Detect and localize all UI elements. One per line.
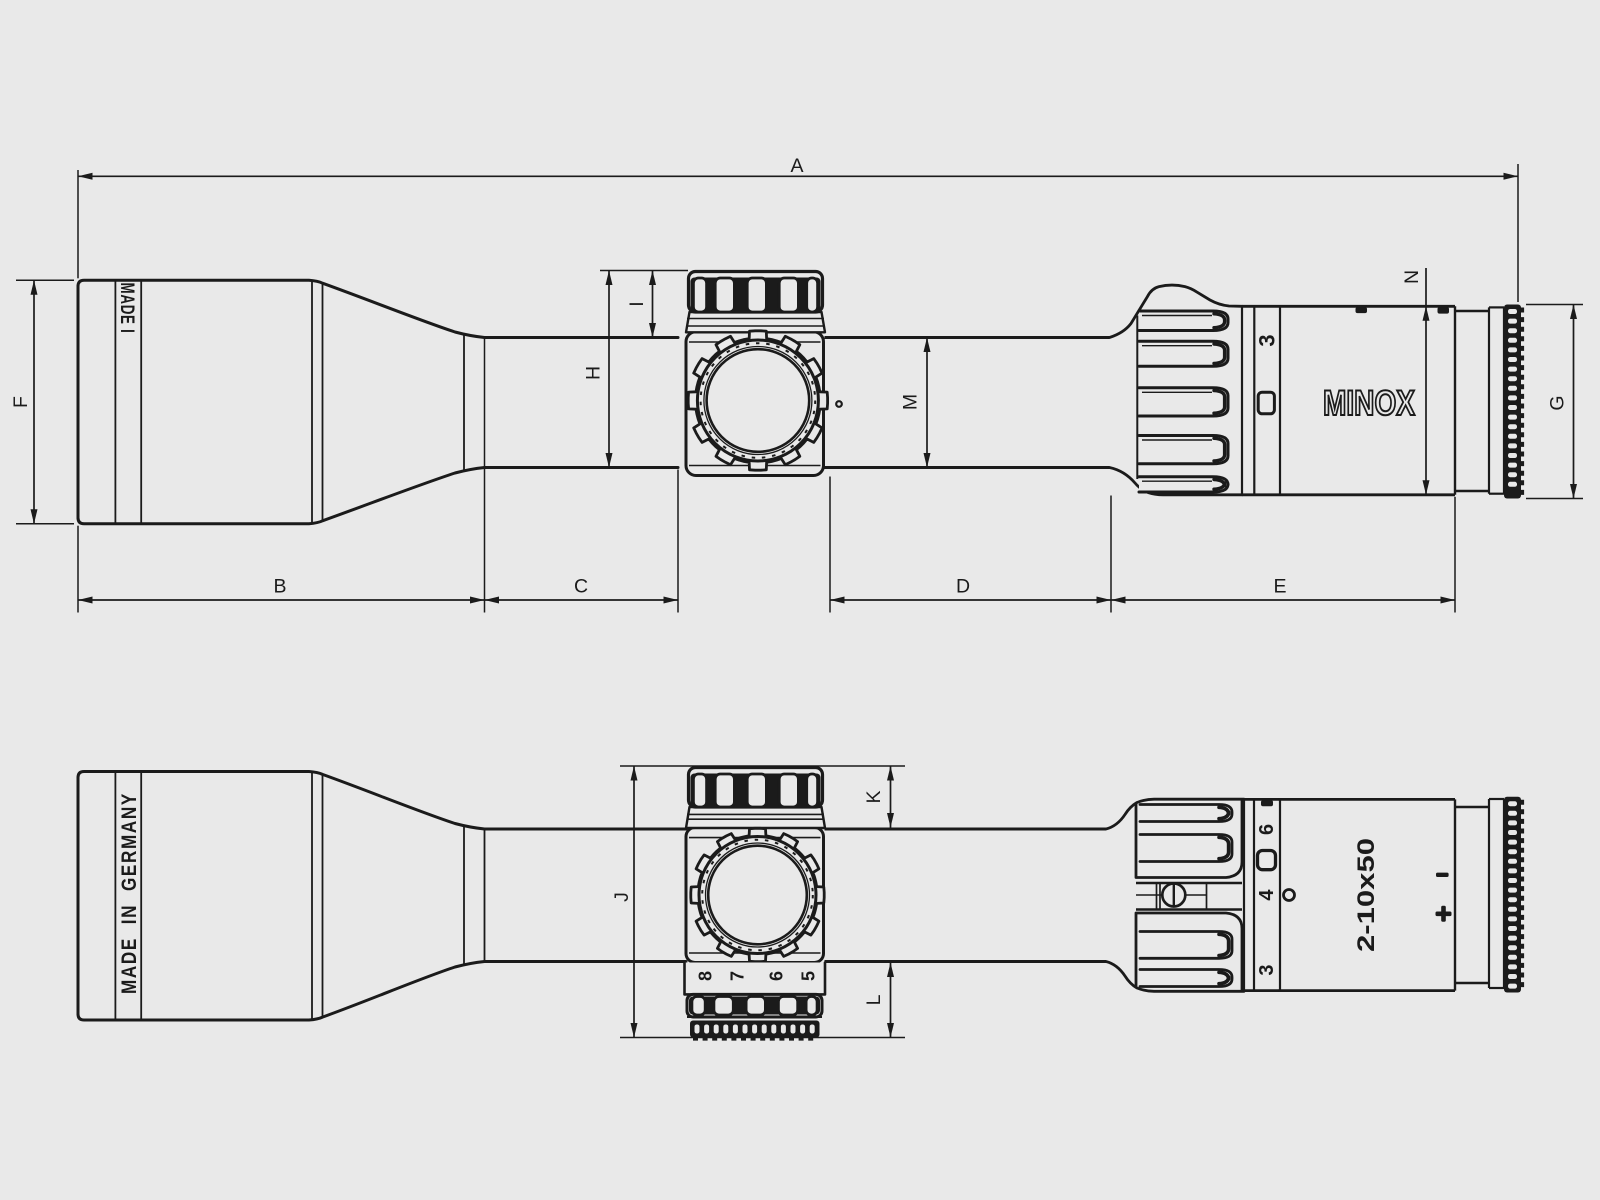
svg-text:B: B	[273, 576, 286, 598]
svg-text:6: 6	[1256, 824, 1278, 835]
svg-text:H: H	[583, 366, 605, 380]
svg-text:7: 7	[728, 971, 748, 981]
svg-text:J: J	[611, 892, 633, 902]
svg-text:E: E	[1273, 576, 1286, 598]
svg-text:I: I	[626, 301, 648, 306]
svg-text:N: N	[1401, 270, 1423, 284]
svg-text:MINOX: MINOX	[1323, 384, 1416, 423]
svg-text:3: 3	[1255, 334, 1280, 346]
svg-text:L: L	[863, 994, 885, 1005]
svg-text:D: D	[956, 576, 970, 598]
svg-text:4: 4	[1256, 889, 1278, 901]
svg-text:G: G	[1547, 395, 1569, 410]
svg-text:2-10x50: 2-10x50	[1353, 838, 1380, 952]
svg-text:F: F	[10, 396, 32, 408]
svg-text:M: M	[900, 394, 922, 410]
svg-text:C: C	[574, 576, 588, 598]
svg-text:8: 8	[696, 971, 716, 981]
svg-text:6: 6	[767, 971, 787, 981]
svg-text:MADE I: MADE I	[116, 283, 137, 334]
svg-text:MADE IN GERMANY: MADE IN GERMANY	[118, 792, 141, 994]
svg-text:3: 3	[1256, 964, 1278, 975]
svg-text:5: 5	[799, 971, 819, 981]
svg-text:A: A	[790, 155, 803, 177]
svg-text:K: K	[863, 790, 885, 803]
